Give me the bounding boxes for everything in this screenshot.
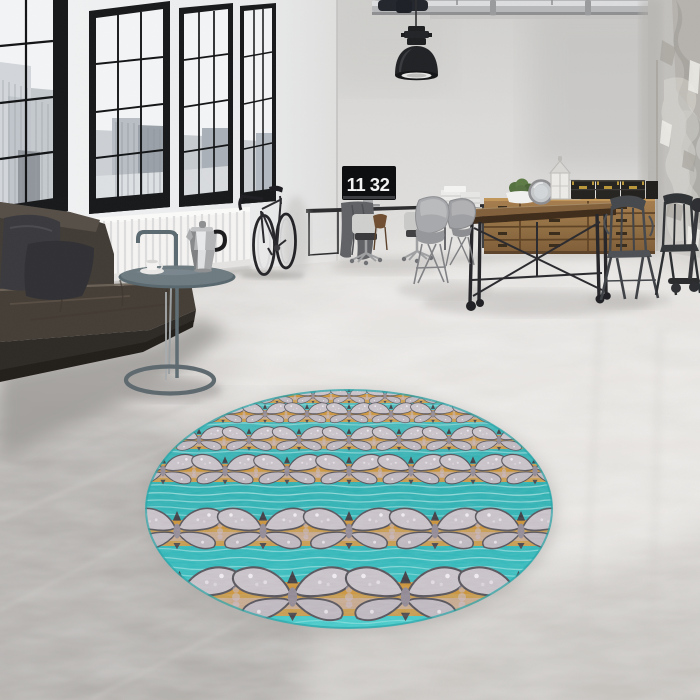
svg-text:11 32: 11 32 [347, 174, 390, 195]
